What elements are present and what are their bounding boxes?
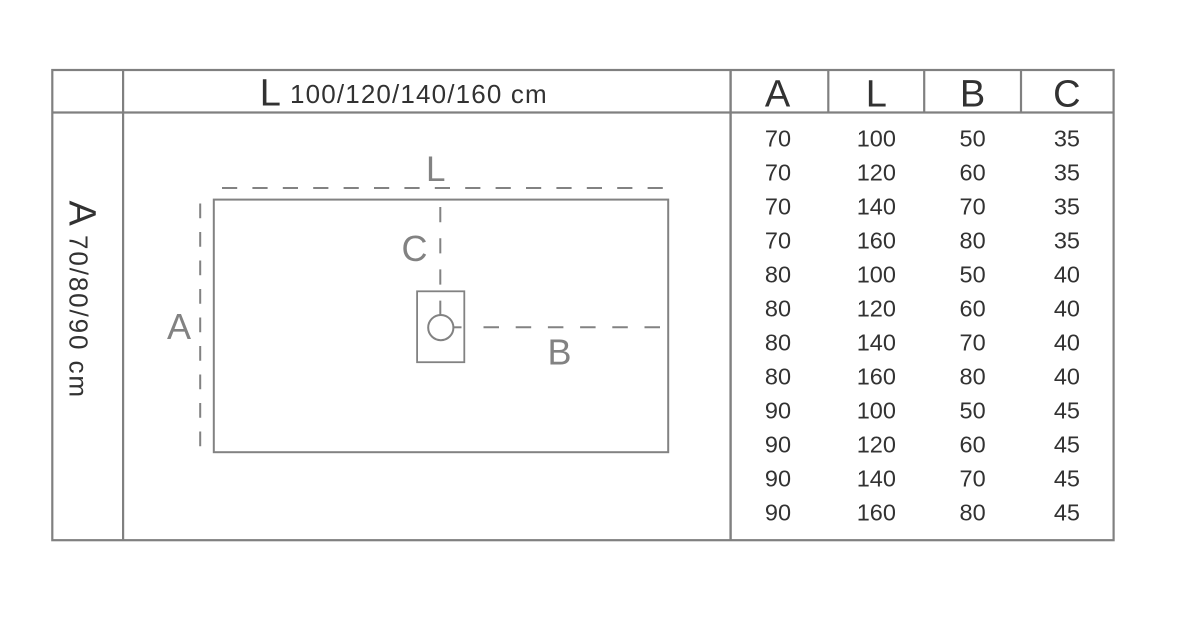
svg-text:80: 80 [765,295,791,321]
svg-text:140: 140 [857,465,896,491]
svg-text:70: 70 [765,227,791,253]
svg-text:70: 70 [960,193,986,219]
svg-text:80: 80 [765,329,791,355]
svg-text:60: 60 [960,431,986,457]
svg-text:60: 60 [960,295,986,321]
svg-text:B: B [960,73,985,115]
svg-text:A: A [167,306,191,347]
svg-text:L: L [260,72,281,114]
svg-text:35: 35 [1054,125,1080,151]
svg-text:40: 40 [1054,329,1080,355]
svg-text:100: 100 [857,125,896,151]
svg-text:90: 90 [765,465,791,491]
svg-text:80: 80 [960,227,986,253]
svg-text:80: 80 [765,261,791,287]
svg-text:90: 90 [765,397,791,423]
svg-text:L: L [426,150,445,189]
svg-text:50: 50 [960,261,986,287]
svg-text:100: 100 [857,261,896,287]
svg-text:80: 80 [765,363,791,389]
svg-text:45: 45 [1054,397,1080,423]
svg-text:40: 40 [1054,295,1080,321]
svg-text:C: C [1053,73,1080,115]
svg-text:160: 160 [857,499,896,525]
svg-text:70: 70 [960,465,986,491]
svg-text:100/120/140/160 cm: 100/120/140/160 cm [290,79,548,109]
svg-text:160: 160 [857,363,896,389]
svg-text:60: 60 [960,159,986,185]
svg-text:120: 120 [857,431,896,457]
svg-text:120: 120 [857,295,896,321]
svg-text:35: 35 [1054,159,1080,185]
svg-text:70: 70 [765,159,791,185]
svg-text:90: 90 [765,499,791,525]
svg-text:45: 45 [1054,465,1080,491]
svg-text:70: 70 [960,329,986,355]
svg-text:45: 45 [1054,499,1080,525]
svg-text:B: B [548,331,572,372]
svg-text:35: 35 [1054,193,1080,219]
svg-text:120: 120 [857,159,896,185]
svg-text:160: 160 [857,227,896,253]
svg-text:80: 80 [960,499,986,525]
svg-text:90: 90 [765,431,791,457]
svg-text:45: 45 [1054,431,1080,457]
svg-text:50: 50 [960,397,986,423]
svg-text:40: 40 [1054,363,1080,389]
svg-text:L: L [866,73,887,115]
svg-text:A: A [765,73,791,115]
svg-text:80: 80 [960,363,986,389]
svg-text:100: 100 [857,397,896,423]
svg-text:140: 140 [857,193,896,219]
svg-text:70: 70 [765,125,791,151]
svg-text:35: 35 [1054,227,1080,253]
svg-text:C: C [402,228,428,269]
svg-text:70: 70 [765,193,791,219]
svg-text:40: 40 [1054,261,1080,287]
svg-text:50: 50 [960,125,986,151]
svg-text:140: 140 [857,329,896,355]
